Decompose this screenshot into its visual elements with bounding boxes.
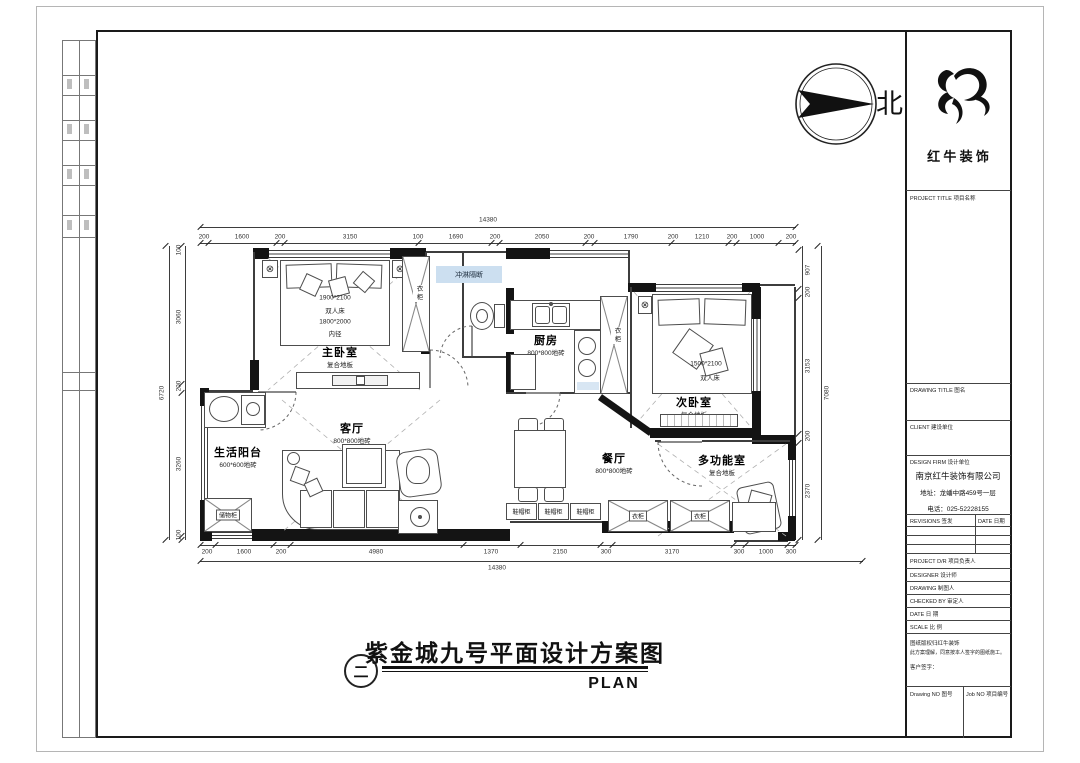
dim-label: 200 <box>584 234 595 241</box>
interior-wall <box>630 287 632 428</box>
strip-text-mark <box>67 79 72 89</box>
faucet <box>549 302 553 306</box>
kitchen-appliance <box>510 354 536 390</box>
dim-label: 100 <box>176 245 183 256</box>
dim-label: 1370 <box>484 549 498 556</box>
dim-total-top: 14380 <box>479 217 497 224</box>
bed-size-label: 1500*2100 <box>690 361 721 368</box>
tb-line <box>906 594 1011 595</box>
floor-label-master: 复合地板 <box>327 359 353 369</box>
dining-chair <box>518 487 538 502</box>
sofa-cushion <box>300 490 332 528</box>
tb-vline <box>975 514 976 553</box>
floor-label-dining: 800*800地砖 <box>595 465 632 475</box>
wardrobe-label: 衣柜 <box>611 327 621 344</box>
tb-line <box>906 633 1011 634</box>
bed-size-label: 1900*2100 <box>319 295 350 302</box>
left-strip-line <box>62 237 96 238</box>
firm-address: 地址：龙蟠中路459号一层 <box>920 487 996 497</box>
dim-label: 200 <box>727 234 738 241</box>
sofa-cushion <box>333 490 365 528</box>
tb-checked-by: CHECKED BY 审定人 <box>910 597 964 605</box>
tb-vline <box>963 686 964 738</box>
dim-label: 1210 <box>695 234 709 241</box>
storage-cabinet-label: 储物柜 <box>216 510 240 521</box>
bed-note-label: 内径 <box>329 328 342 338</box>
shoe-cabinet-label: 鞋帽柜 <box>576 507 594 516</box>
interior-wall <box>462 356 508 358</box>
dining-chair <box>544 487 564 502</box>
wall-thin <box>794 287 796 440</box>
dim-label: 200 <box>490 234 501 241</box>
coffee-table-inner <box>346 448 382 484</box>
shower-partition-chip: 冲淋隔断 <box>436 266 502 283</box>
dim-label: 1000 <box>750 234 764 241</box>
dim-label: 2050 <box>535 234 549 241</box>
wall-segment <box>788 440 796 460</box>
title-underline-thin <box>382 671 648 672</box>
dim-label: 1600 <box>235 234 249 241</box>
window <box>656 284 742 292</box>
bed-type-label: 双人床 <box>700 372 720 382</box>
nightstand: ⊗ <box>638 296 652 314</box>
wall-segment <box>506 248 550 259</box>
tb-line <box>906 686 1011 687</box>
tb-line <box>906 383 1011 384</box>
shoe-cabinet-label: 鞋帽柜 <box>544 507 562 516</box>
side-table-round <box>287 452 300 465</box>
bed-bench <box>660 414 738 427</box>
lamp-icon: ⊗ <box>266 264 274 275</box>
room-label-second: 次卧室 <box>676 394 712 410</box>
wall-segment <box>752 287 761 319</box>
strip-text-mark <box>84 79 89 89</box>
toilet-tank <box>494 304 505 328</box>
sink-bowl <box>552 306 567 324</box>
plan-label: PLAN <box>588 675 640 693</box>
dim-label: 1600 <box>237 549 251 556</box>
dim-label: 200 <box>275 234 286 241</box>
bed-size-label: 1800*2000 <box>319 319 350 326</box>
bed-type-label: 双人床 <box>325 305 345 315</box>
window <box>550 250 628 258</box>
sofa-cushion <box>366 490 399 528</box>
toilet-bowl-inner <box>476 309 488 323</box>
wall-segment <box>252 529 306 541</box>
company-name: 红 牛 装 饰 <box>927 146 989 165</box>
tb-date: DATE 日 期 <box>910 610 938 618</box>
dim-line <box>200 227 796 228</box>
dim-line <box>169 246 170 540</box>
room-label-kitchen: 厨房 <box>534 332 558 348</box>
strip-text-mark <box>84 169 89 179</box>
dim-label: 300 <box>786 549 797 556</box>
north-compass-icon <box>792 60 880 148</box>
dim-label: 200 <box>202 549 213 556</box>
window <box>269 250 390 258</box>
strip-text-mark <box>84 124 89 134</box>
dim-label: 200 <box>805 287 812 298</box>
sheet-title: 紫金城九号平面设计方案图 <box>365 634 665 668</box>
dim-label: 300 <box>734 549 745 556</box>
dim-label: 200 <box>668 234 679 241</box>
floor-label-multi: 复合地板 <box>709 467 735 477</box>
tb-line <box>906 620 1011 621</box>
dim-label: 3060 <box>176 310 183 324</box>
tb-line <box>906 455 1011 456</box>
interior-wall <box>702 440 790 442</box>
dim-label: 3260 <box>176 457 183 471</box>
sink-bowl <box>535 306 550 324</box>
left-strip-line <box>62 95 96 96</box>
tb-line <box>906 581 1011 582</box>
room-label-balcony: 生活阳台 <box>214 444 262 460</box>
tb-job-no: Job NO 项目编号 <box>966 690 1008 698</box>
room-label-master: 主卧室 <box>322 344 358 360</box>
tb-line <box>906 568 1011 569</box>
dim-label: 3150 <box>343 234 357 241</box>
dim-label: 200 <box>276 549 287 556</box>
wall-thin <box>760 284 795 286</box>
plant-dot <box>418 515 422 519</box>
wall-segment <box>250 360 259 390</box>
dim-line <box>185 246 186 540</box>
tb-scale: SCALE 比 例 <box>910 623 942 631</box>
left-strip-line <box>62 215 96 216</box>
wall-thin <box>462 251 506 253</box>
dim-label: 2150 <box>553 549 567 556</box>
tb-design-firm: DESIGN FIRM 设计单位 <box>910 458 970 466</box>
tv-center <box>356 376 365 385</box>
dim-label: 200 <box>805 431 812 442</box>
lamp-icon: ⊗ <box>641 300 649 311</box>
tb-line <box>906 420 1011 421</box>
wardrobe-label: 衣柜 <box>413 285 423 302</box>
tb-line <box>906 544 1011 545</box>
tb-line <box>906 553 1011 554</box>
tb-drawing-title: DRAWING TITLE 图名 <box>910 386 965 394</box>
floor-label-balcony: 600*600地砖 <box>219 459 256 469</box>
pillow <box>704 298 747 325</box>
tb-note3: 客户签字： <box>910 663 938 671</box>
firm-phone: 电话：025-52228155 <box>927 503 988 513</box>
wall-thin <box>426 251 462 253</box>
shower-partition-label: 冲淋隔断 <box>455 270 483 280</box>
dim-label: 200 <box>199 234 210 241</box>
left-strip-line <box>62 372 96 373</box>
dim-total-bottom: 14380 <box>488 565 506 572</box>
dim-label: 200 <box>176 381 183 392</box>
wall-thin <box>510 521 604 523</box>
title-underline-thick <box>382 666 648 669</box>
left-strip-line <box>62 165 96 166</box>
cabinet-plain <box>732 502 776 532</box>
dim-line <box>821 246 822 540</box>
wall-segment <box>778 532 795 541</box>
burner <box>578 337 596 355</box>
dim-line <box>802 246 803 540</box>
dim-label: 1790 <box>624 234 638 241</box>
interior-wall <box>506 392 526 394</box>
wall-segment <box>628 283 656 292</box>
strip-text-mark <box>67 220 72 230</box>
firm-name: 南京红牛装饰有限公司 <box>915 470 1000 482</box>
dim-total-left: 6720 <box>159 386 166 400</box>
shoe-cabinet: 鞋帽柜 <box>506 503 537 520</box>
strip-text-mark <box>84 220 89 230</box>
dim-label: 2370 <box>805 484 812 498</box>
tb-line <box>906 607 1011 608</box>
wardrobe-box: 衣柜 <box>600 296 628 394</box>
left-strip-line <box>62 75 96 76</box>
north-label: 北 <box>876 82 903 121</box>
drawing-sheet: 红 牛 装 饰 PROJECT TITLE 项目名称 DRAWING TITLE… <box>0 0 1080 763</box>
tb-drawing-by: DRAWING 制图人 <box>910 584 954 592</box>
tb-line <box>906 535 1011 536</box>
wall-segment <box>253 248 269 259</box>
dim-label: 300 <box>601 549 612 556</box>
company-logo <box>924 60 996 140</box>
dim-total-right: 7080 <box>824 386 831 400</box>
dim-label: 100 <box>176 530 183 541</box>
wall-thin <box>628 250 630 285</box>
dim-label: 200 <box>786 234 797 241</box>
interior-wall <box>655 440 661 442</box>
dim-label: 3153 <box>805 359 812 373</box>
tb-note2: 此方案理解，同意按本人签字的图纸施工。 <box>910 649 1005 656</box>
shoe-cabinet: 鞋帽柜 <box>570 503 601 520</box>
tb-drawing-no: Drawing NO 图号 <box>910 690 952 698</box>
wardrobe-box: 衣柜 <box>402 256 430 352</box>
dim-label: 907 <box>805 265 812 276</box>
wash-basin <box>209 396 239 422</box>
room-label-multi: 多功能室 <box>698 452 746 468</box>
window <box>212 532 252 539</box>
room-label-living: 客厅 <box>340 420 364 436</box>
dim-line <box>200 561 863 562</box>
title-block-divider <box>905 30 907 738</box>
window <box>753 319 761 391</box>
left-strip-line <box>62 120 96 121</box>
dim-label: 4980 <box>369 549 383 556</box>
tb-line <box>906 514 1011 515</box>
burner <box>578 359 596 377</box>
strip-text-mark <box>67 124 72 134</box>
nightstand: ⊗ <box>262 260 278 278</box>
wall-segment <box>650 428 754 438</box>
dim-label: 3170 <box>665 549 679 556</box>
room-label-dining: 餐厅 <box>602 450 626 466</box>
tb-date-col: DATE 日期 <box>978 517 1005 525</box>
dim-label: 1690 <box>449 234 463 241</box>
tb-project-dr: PROJECT D/R 项目负责人 <box>910 557 976 565</box>
left-strip-line <box>62 140 96 141</box>
shoe-cabinet-label: 鞋帽柜 <box>512 507 530 516</box>
washing-machine-drum <box>246 402 260 416</box>
wardrobe-label: 衣柜 <box>629 511 647 522</box>
wardrobe-label: 衣柜 <box>691 511 709 522</box>
dim-label: 100 <box>413 234 424 241</box>
tb-line <box>906 190 1011 191</box>
left-strip-divider <box>79 40 80 738</box>
tb-project-title: PROJECT TITLE 项目名称 <box>910 194 976 202</box>
dining-table <box>514 430 566 488</box>
pillow <box>658 298 701 325</box>
dim-label: 1000 <box>759 549 773 556</box>
stove-chip <box>577 382 599 390</box>
tb-revisions: REVISIONS 签发 <box>910 517 952 525</box>
tb-designer: DESIGNER 设计师 <box>910 571 957 579</box>
tb-note1: 图纸版权归红牛装饰 <box>910 639 960 647</box>
left-strip-line <box>62 390 96 391</box>
armchair-seat <box>406 456 430 484</box>
shoe-cabinet: 鞋帽柜 <box>538 503 569 520</box>
left-strip-line <box>62 185 96 186</box>
strip-text-mark <box>67 169 72 179</box>
tb-line <box>906 526 1011 527</box>
tb-client: CLIENT 建设单位 <box>910 423 953 431</box>
window <box>789 460 796 516</box>
